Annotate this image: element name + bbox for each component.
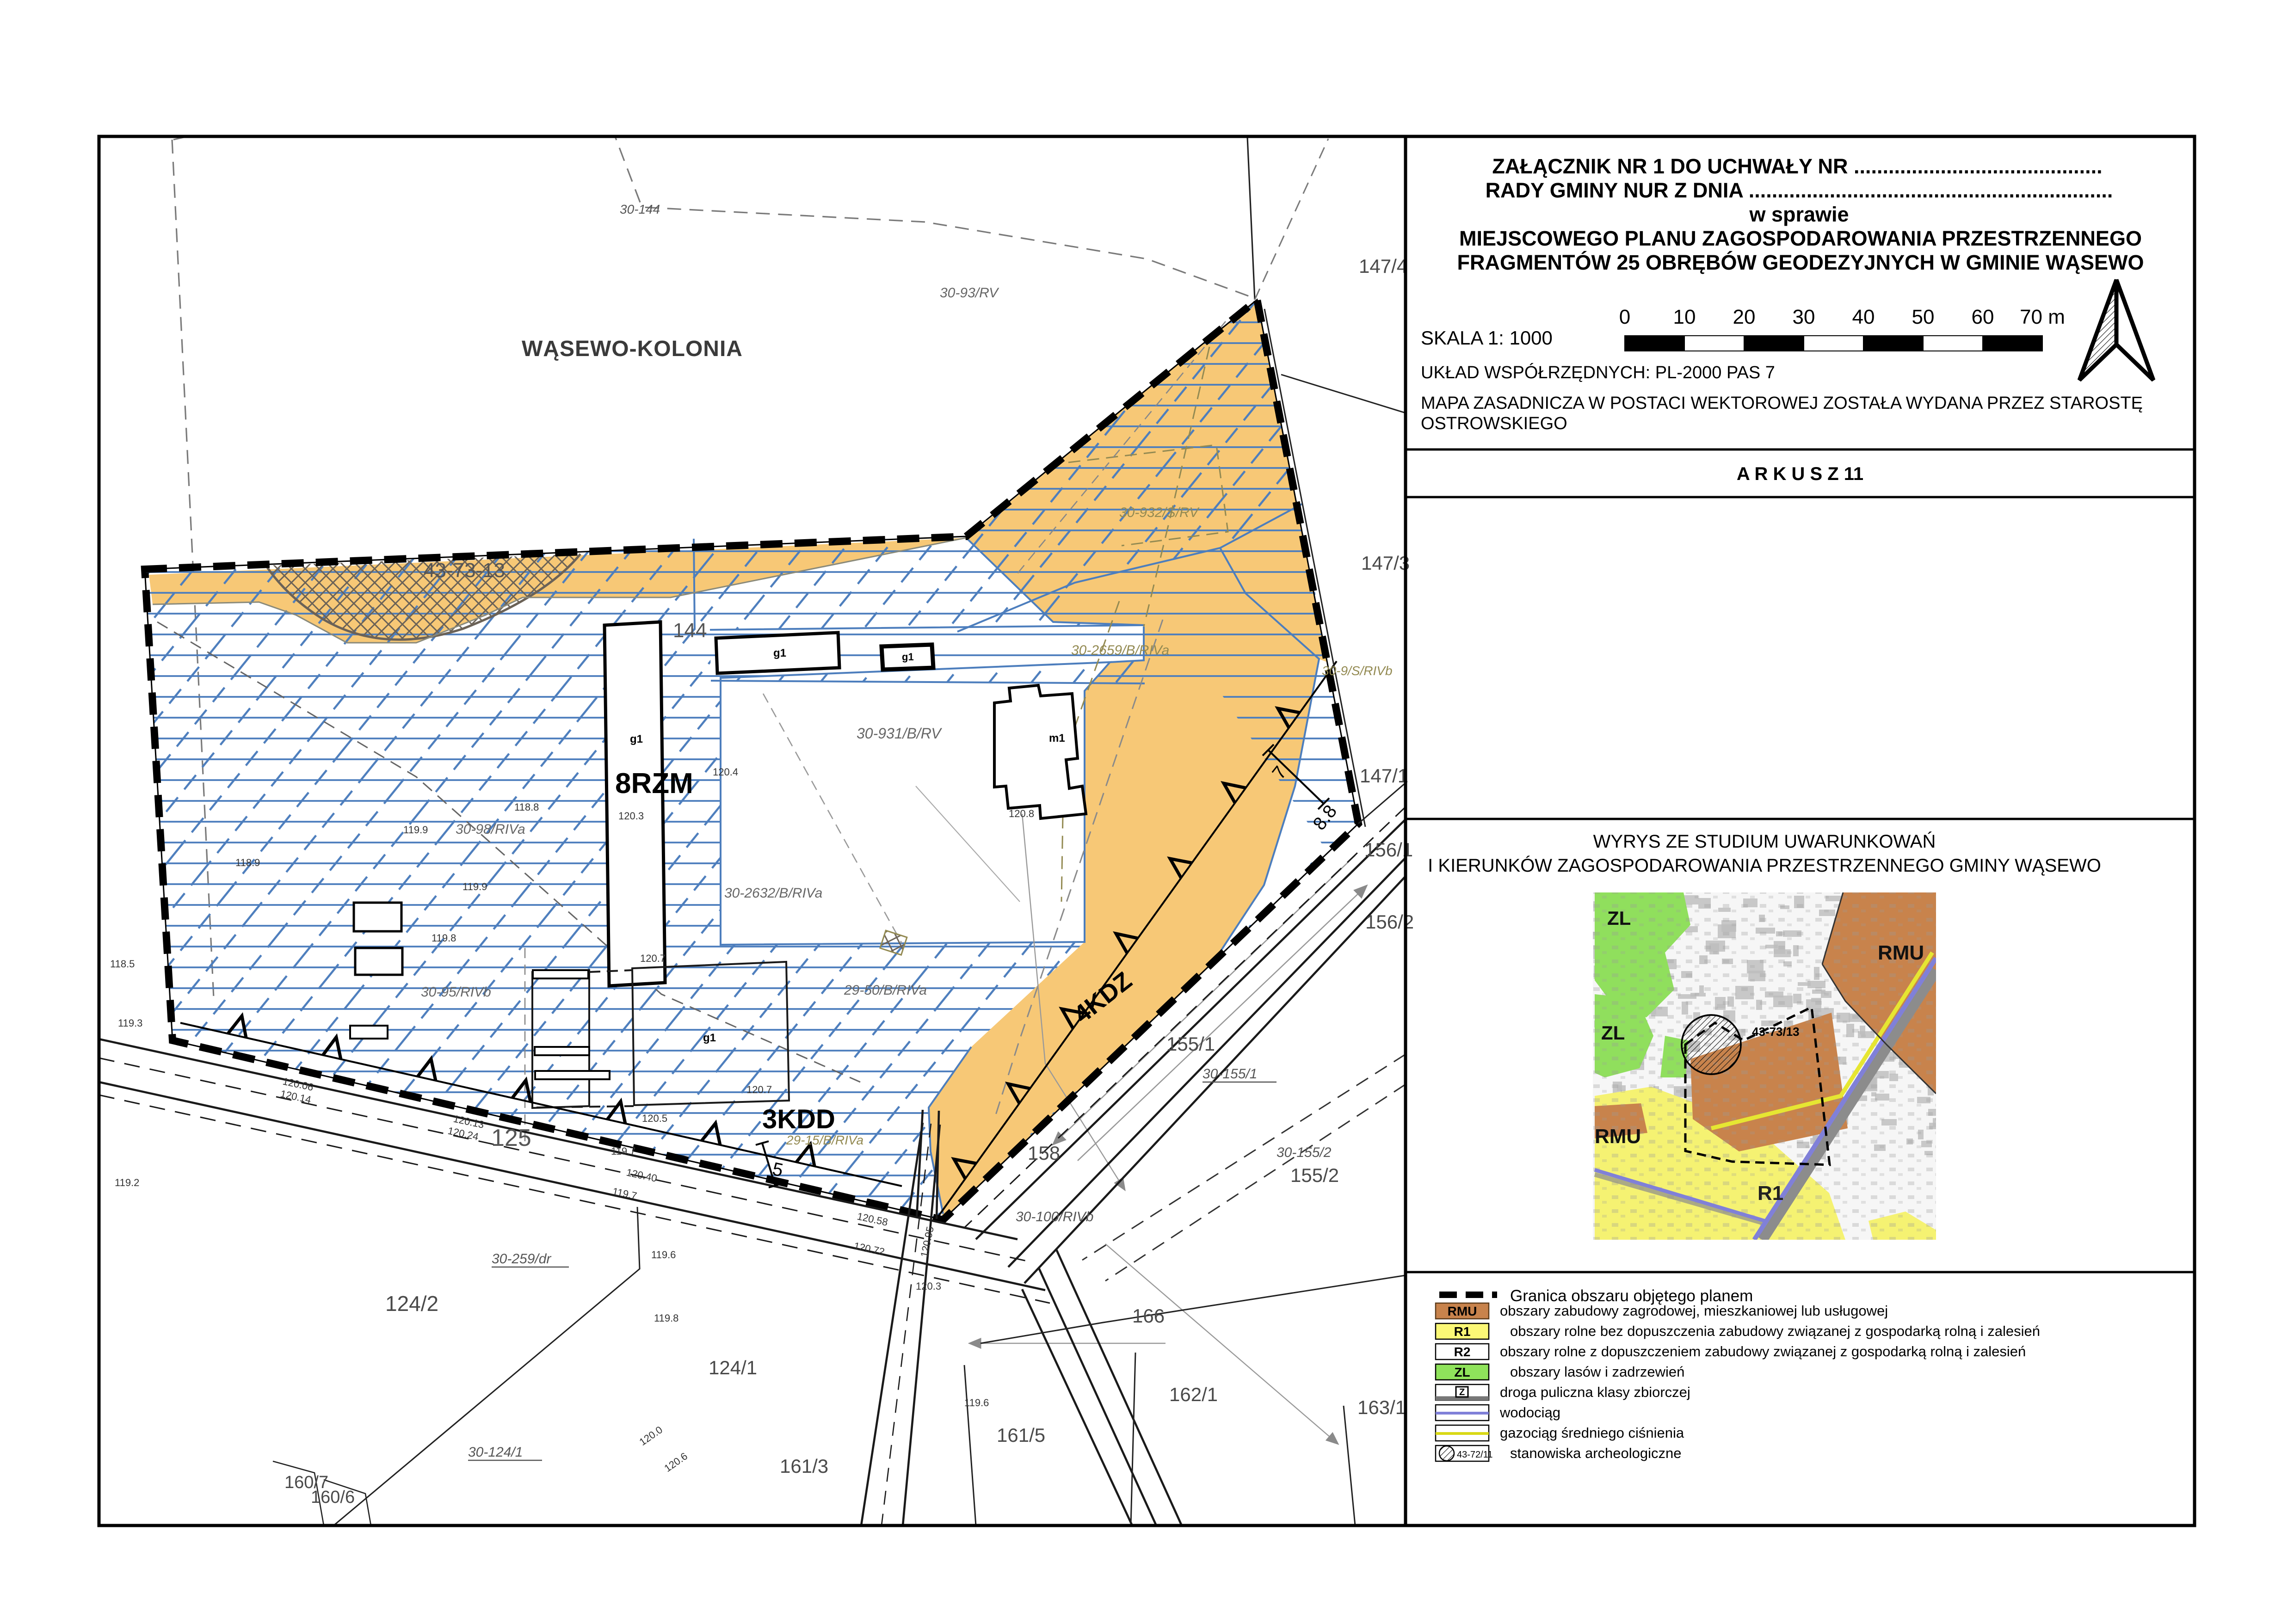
svg-text:30-144: 30-144 — [620, 202, 660, 216]
svg-text:147/1: 147/1 — [1360, 765, 1408, 787]
svg-text:70 m: 70 m — [2020, 306, 2065, 328]
svg-text:obszary rolne z dopuszczeniem: obszary rolne z dopuszczeniem zabudowy z… — [1500, 1343, 2026, 1359]
svg-text:20: 20 — [1733, 306, 1756, 328]
svg-text:stanowiska archeologiczne: stanowiska archeologiczne — [1510, 1445, 1682, 1461]
svg-text:120.7: 120.7 — [746, 1084, 772, 1095]
svg-text:WĄSEWO-KOLONIA: WĄSEWO-KOLONIA — [522, 337, 743, 361]
svg-text:0: 0 — [1619, 306, 1630, 328]
svg-text:m1: m1 — [1049, 732, 1065, 744]
svg-text:obszary lasów i zadrzewień: obszary lasów i zadrzewień — [1510, 1364, 1684, 1380]
svg-text:118.9: 118.9 — [235, 857, 260, 868]
svg-text:Z: Z — [1459, 1387, 1465, 1397]
svg-text:UKŁAD WSPÓŁRZĘDNYCH: PL-2000 P: UKŁAD WSPÓŁRZĘDNYCH: PL-2000 PAS 7 — [1421, 363, 1775, 382]
svg-text:8RZM: 8RZM — [615, 768, 693, 800]
svg-text:FRAGMENTÓW 25 OBRĘBÓW GEODEZYJ: FRAGMENTÓW 25 OBRĘBÓW GEODEZYJNYCH W GMI… — [1457, 251, 2144, 274]
svg-text:R2: R2 — [1454, 1345, 1471, 1359]
svg-text:50: 50 — [1912, 306, 1935, 328]
svg-text:30-9/S/RIVb: 30-9/S/RIVb — [1322, 664, 1393, 678]
svg-text:120.4: 120.4 — [713, 766, 738, 778]
svg-text:10: 10 — [1673, 306, 1696, 328]
svg-text:WYRYS ZE STUDIUM UWARUNKOWAŃ: WYRYS ZE STUDIUM UWARUNKOWAŃ — [1593, 831, 1936, 852]
svg-text:obszary rolne bez dopuszczenia: obszary rolne bez dopuszczenia zabudowy … — [1510, 1323, 2040, 1339]
svg-text:gazociąg średniego ciśnienia: gazociąg średniego ciśnienia — [1500, 1425, 1684, 1441]
svg-text:120.7: 120.7 — [640, 953, 666, 964]
svg-text:30-155/1: 30-155/1 — [1202, 1066, 1257, 1082]
svg-text:OSTROWSKIEGO: OSTROWSKIEGO — [1421, 414, 1567, 433]
svg-text:30-2659/B/RIVa: 30-2659/B/RIVa — [1071, 643, 1169, 658]
svg-text:43-72/11: 43-72/11 — [1457, 1450, 1492, 1460]
svg-text:30-155/2: 30-155/2 — [1276, 1145, 1332, 1160]
svg-text:144: 144 — [673, 619, 707, 642]
svg-text:RMU: RMU — [1595, 1125, 1641, 1148]
svg-text:29-50/B/RIVa: 29-50/B/RIVa — [844, 983, 927, 998]
svg-text:30-932/S/RV: 30-932/S/RV — [1119, 505, 1200, 520]
svg-text:w sprawie: w sprawie — [1749, 203, 1849, 226]
svg-text:119.2: 119.2 — [115, 1177, 139, 1188]
svg-text:R1: R1 — [1757, 1182, 1783, 1205]
svg-text:161/5: 161/5 — [997, 1424, 1045, 1446]
svg-text:29-15/B/RIVa: 29-15/B/RIVa — [786, 1133, 863, 1147]
svg-text:30-98/RIVa: 30-98/RIVa — [456, 822, 525, 837]
svg-text:R1: R1 — [1454, 1324, 1471, 1339]
svg-text:SKALA 1: 1000: SKALA 1: 1000 — [1421, 327, 1553, 349]
svg-text:ZL: ZL — [1454, 1365, 1470, 1379]
svg-text:obszary zabudowy zagrodowej, m: obszary zabudowy zagrodowej, mieszkaniow… — [1500, 1303, 1888, 1319]
svg-text:RMU: RMU — [1448, 1304, 1477, 1318]
svg-text:g1: g1 — [703, 1032, 716, 1044]
svg-text:30: 30 — [1793, 306, 1815, 328]
svg-text:155/1: 155/1 — [1166, 1033, 1215, 1055]
svg-text:A R K U S Z 11: A R K U S Z 11 — [1737, 464, 1863, 484]
svg-text:124/2: 124/2 — [385, 1292, 438, 1316]
svg-text:158: 158 — [1028, 1142, 1060, 1164]
svg-text:MAPA ZASADNICZA W POSTACI WEKT: MAPA ZASADNICZA W POSTACI WEKTOROWEJ ZOS… — [1421, 394, 2143, 413]
svg-text:43-73-13: 43-73-13 — [424, 559, 505, 582]
svg-text:MIEJSCOWEGO PLANU ZAGOSPODAROW: MIEJSCOWEGO PLANU ZAGOSPODAROWANIA PRZES… — [1459, 227, 2142, 250]
svg-text:118.8: 118.8 — [514, 801, 539, 813]
svg-text:119.9: 119.9 — [462, 881, 487, 892]
svg-text:60: 60 — [1972, 306, 1994, 328]
svg-text:161/3: 161/3 — [780, 1455, 828, 1477]
svg-text:120.3: 120.3 — [916, 1280, 941, 1292]
svg-text:119.6: 119.6 — [964, 1397, 989, 1409]
svg-text:119.3: 119.3 — [118, 1017, 142, 1029]
svg-text:147/4: 147/4 — [1359, 255, 1407, 277]
svg-text:124/1: 124/1 — [709, 1357, 757, 1378]
svg-text:166: 166 — [1132, 1305, 1165, 1327]
svg-text:163/1: 163/1 — [1357, 1396, 1406, 1418]
svg-text:ZAŁĄCZNIK NR 1 DO UCHWAŁY NR .: ZAŁĄCZNIK NR 1 DO UCHWAŁY NR ...........… — [1492, 154, 2102, 178]
svg-text:ZL: ZL — [1601, 1022, 1625, 1044]
svg-text:ZL: ZL — [1607, 907, 1631, 929]
svg-text:30-93/RV: 30-93/RV — [940, 285, 999, 301]
svg-text:30-100/RIVb: 30-100/RIVb — [1016, 1209, 1093, 1224]
svg-text:43-73/13: 43-73/13 — [1752, 1025, 1800, 1039]
svg-text:wodociąg: wodociąg — [1499, 1404, 1560, 1421]
svg-text:30-124/1: 30-124/1 — [468, 1445, 523, 1460]
svg-text:I KIERUNKÓW ZAGOSPODAROWANIA P: I KIERUNKÓW ZAGOSPODAROWANIA PRZESTRZENN… — [1428, 855, 2101, 876]
svg-text:30-931/B/RV: 30-931/B/RV — [857, 725, 942, 742]
svg-text:3KDD: 3KDD — [762, 1104, 835, 1134]
svg-text:155/2: 155/2 — [1290, 1164, 1339, 1186]
svg-text:160/6: 160/6 — [311, 1488, 355, 1507]
svg-text:RADY GMINY NUR Z DNIA ........: RADY GMINY NUR Z DNIA ..................… — [1486, 178, 2113, 202]
svg-text:119.9: 119.9 — [403, 824, 428, 836]
svg-text:118.5: 118.5 — [110, 958, 135, 970]
svg-text:30-95/RIVb: 30-95/RIVb — [421, 984, 491, 1000]
svg-text:119.8: 119.8 — [654, 1312, 678, 1324]
svg-text:147/3: 147/3 — [1361, 552, 1410, 574]
svg-text:30-2632/B/RIVa: 30-2632/B/RIVa — [724, 886, 822, 901]
svg-text:g1: g1 — [902, 651, 914, 663]
svg-text:g1: g1 — [773, 647, 786, 659]
svg-text:119.7: 119.7 — [611, 1145, 635, 1157]
svg-text:RMU: RMU — [1878, 941, 1924, 964]
svg-text:30-259/dr: 30-259/dr — [492, 1251, 551, 1267]
svg-text:120.5: 120.5 — [642, 1113, 667, 1124]
svg-text:120.3: 120.3 — [618, 810, 644, 822]
svg-text:119.8: 119.8 — [432, 932, 456, 944]
svg-text:droga puliczna klasy zbiorczej: droga puliczna klasy zbiorczej — [1500, 1384, 1690, 1400]
svg-text:120.8: 120.8 — [1009, 808, 1034, 819]
svg-text:125: 125 — [491, 1125, 531, 1151]
svg-text:162/1: 162/1 — [1169, 1384, 1218, 1405]
svg-text:40: 40 — [1852, 306, 1875, 328]
svg-text:119.6: 119.6 — [651, 1249, 676, 1261]
svg-text:g1: g1 — [630, 733, 643, 745]
